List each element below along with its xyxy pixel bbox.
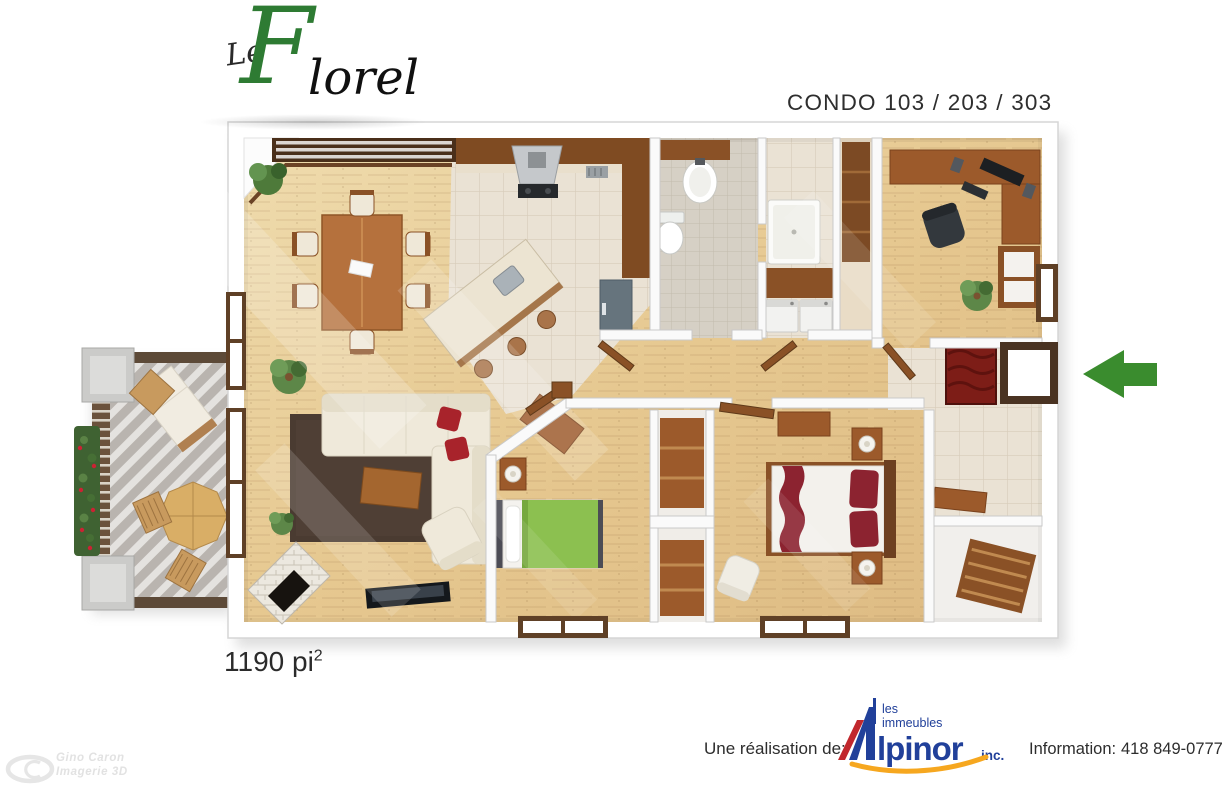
logo-initial: F	[240, 0, 314, 100]
dining-window	[226, 292, 246, 390]
marketing-sheet: Le F lorel CONDO 103 / 203 / 303 1190 pi…	[0, 0, 1224, 792]
logo-rest: lorel	[308, 50, 419, 106]
dining-chair	[406, 232, 430, 256]
pergola-beams	[272, 138, 456, 162]
living-window	[226, 408, 246, 558]
entrance-arrow	[1083, 350, 1157, 398]
office-window	[1036, 264, 1058, 322]
dining-chair	[292, 232, 318, 256]
washer	[766, 300, 798, 332]
alpinor-logo: les immeubles lpinor inc.	[836, 698, 1006, 776]
office-cabinet	[998, 246, 1040, 308]
realization-label: Une réalisation de:	[704, 739, 846, 759]
hall-cabinet	[552, 382, 572, 398]
balcony-pillar	[82, 348, 134, 402]
alpinor-immeubles: immeubles	[882, 716, 942, 730]
burgundy-pillow	[849, 510, 879, 547]
dining-chair	[350, 190, 374, 216]
dresser	[778, 412, 830, 436]
nightstand	[852, 428, 882, 460]
information-phone: 418 849-0777	[1121, 740, 1223, 759]
bedroom-window	[518, 616, 608, 638]
information-label: Information:	[1029, 740, 1116, 759]
balcony-pillar	[82, 556, 134, 610]
entry-rug	[946, 342, 996, 404]
logo-shadow	[198, 114, 428, 130]
alpinor-les: les	[882, 702, 898, 716]
burgundy-pillow	[849, 469, 879, 508]
coffee-table	[360, 467, 421, 509]
laundry	[764, 268, 836, 332]
nightstand	[500, 458, 526, 490]
condo-title: CONDO 103 / 203 / 303	[787, 90, 1052, 116]
red-pillow	[444, 436, 470, 462]
stove	[518, 184, 558, 198]
flower-box	[74, 426, 100, 556]
area-label: 1190 pi2	[224, 646, 323, 678]
closet-shelves	[660, 540, 704, 616]
vanity	[658, 140, 730, 160]
cooktop-grate	[586, 166, 608, 178]
balcony	[74, 348, 228, 610]
watermark-name: Gino Caron	[56, 752, 125, 764]
dryer	[800, 300, 832, 332]
kitchen-counter-right	[622, 164, 652, 278]
entry-door	[1000, 342, 1058, 404]
watermark-tagline: Imagerie 3D	[56, 766, 128, 778]
watermark-monogram-icon	[8, 757, 52, 781]
alpinor-name: lpinor	[877, 730, 964, 767]
master-window	[760, 616, 850, 638]
floorplan-rendering	[0, 0, 1224, 792]
closet-shelves	[660, 418, 704, 508]
refrigerator	[600, 280, 632, 332]
le-florel-logo: Le F lorel	[190, 22, 450, 124]
